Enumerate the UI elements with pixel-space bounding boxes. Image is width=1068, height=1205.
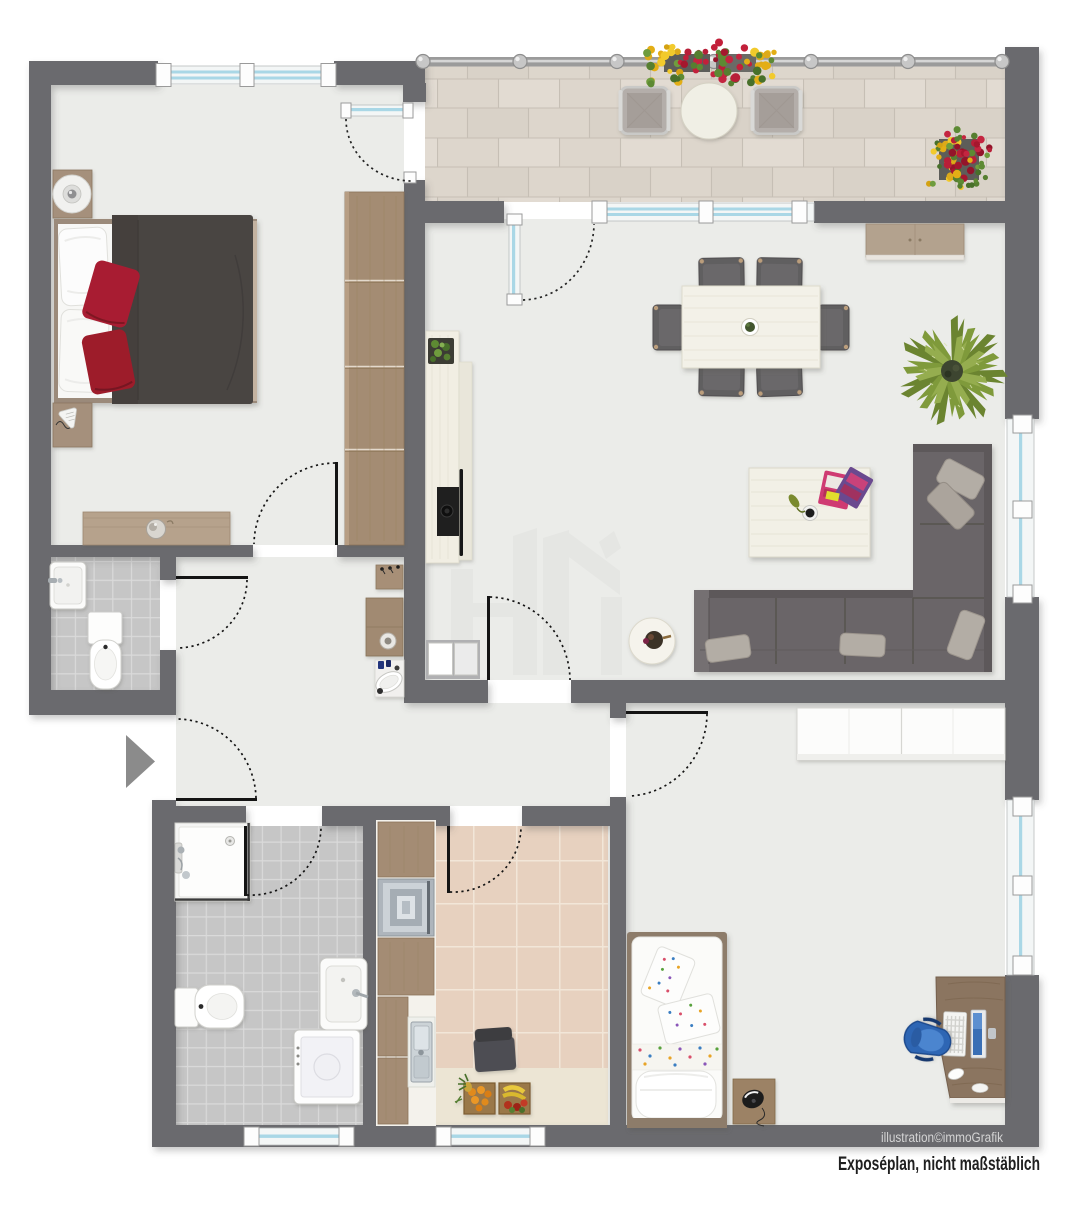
svg-text:illustration©immoGrafik: illustration©immoGrafik (881, 1130, 1003, 1145)
svg-text:Exposéplan, nicht maßstäblich: Exposéplan, nicht maßstäblich (838, 1154, 1040, 1175)
